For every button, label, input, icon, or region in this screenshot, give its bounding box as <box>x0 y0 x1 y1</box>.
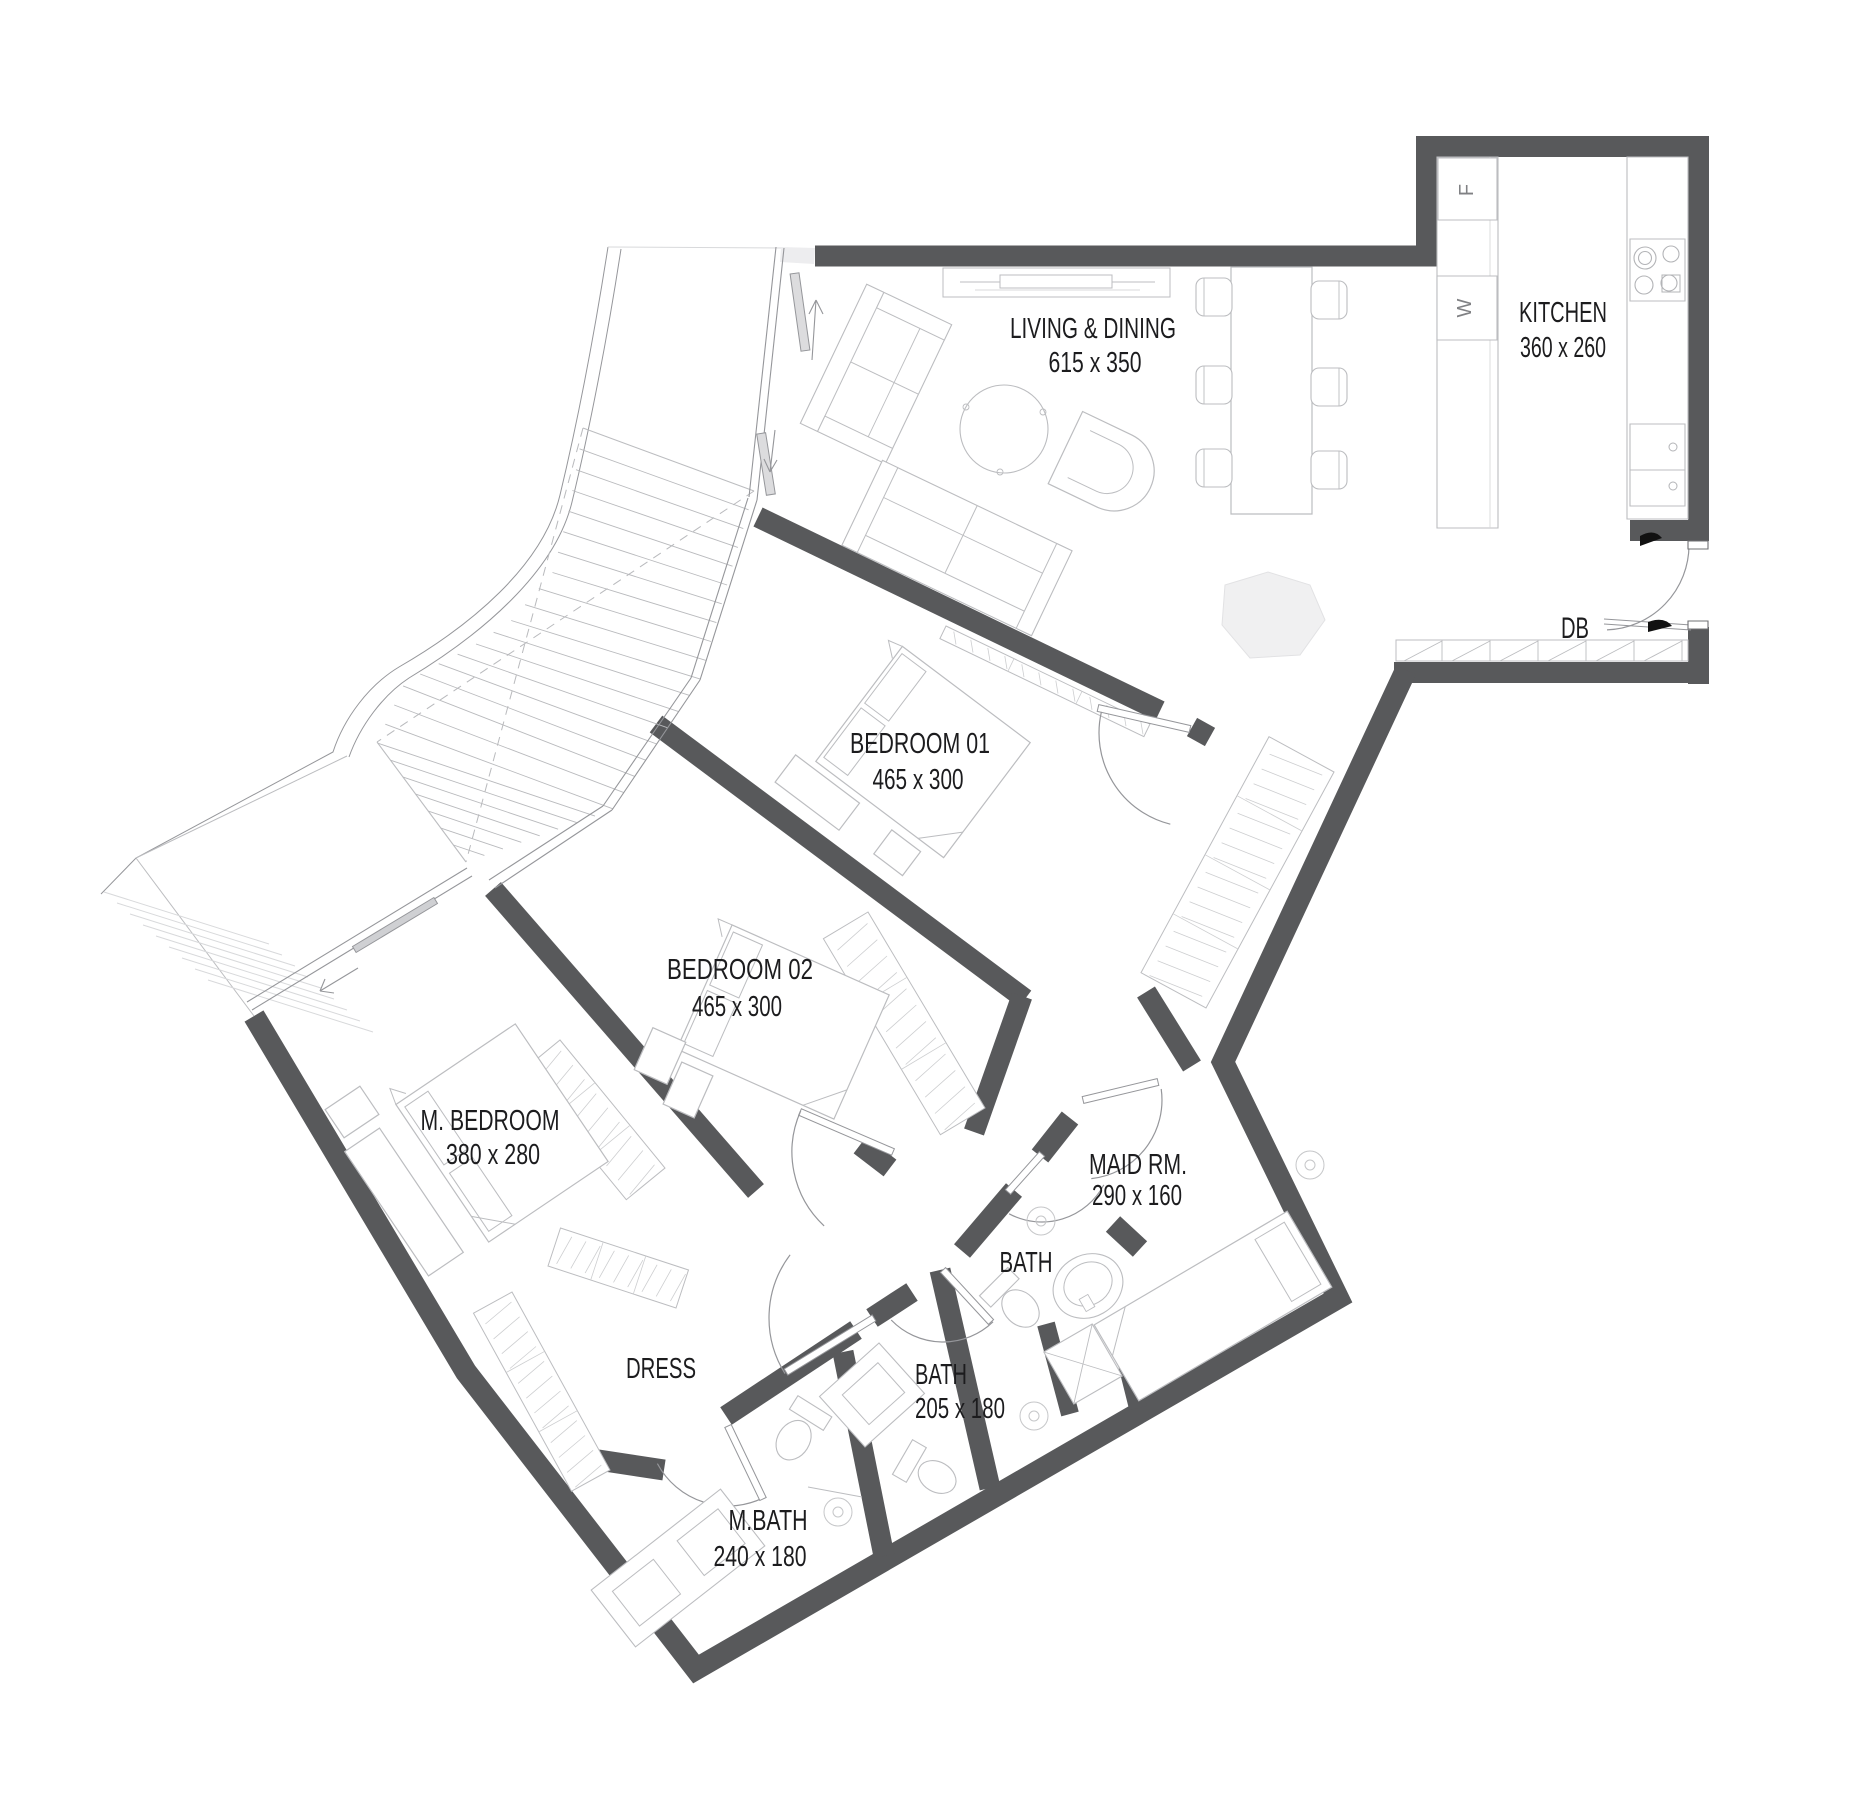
svg-text:DB: DB <box>1561 612 1589 645</box>
svg-text:BEDROOM 01: BEDROOM 01 <box>850 728 990 760</box>
svg-text:380 x 280: 380 x 280 <box>446 1139 540 1171</box>
svg-text:M. BEDROOM: M. BEDROOM <box>421 1105 560 1137</box>
svg-text:465 x 300: 465 x 300 <box>873 764 964 796</box>
svg-text:MAID RM.: MAID RM. <box>1089 1149 1187 1181</box>
svg-text:KITCHEN: KITCHEN <box>1519 297 1607 329</box>
svg-text:BATH: BATH <box>915 1359 967 1391</box>
svg-text:W: W <box>1454 298 1476 317</box>
svg-text:360 x 260: 360 x 260 <box>1520 332 1606 364</box>
svg-text:BATH: BATH <box>1000 1247 1053 1279</box>
svg-text:615 x 350: 615 x 350 <box>1049 347 1142 379</box>
svg-text:LIVING & DINING: LIVING & DINING <box>1010 313 1176 345</box>
svg-text:F: F <box>1456 184 1478 196</box>
svg-text:205 x 180: 205 x 180 <box>915 1393 1005 1425</box>
svg-text:BEDROOM 02: BEDROOM 02 <box>667 954 813 986</box>
svg-text:DRESS: DRESS <box>626 1353 696 1385</box>
svg-text:290 x 160: 290 x 160 <box>1092 1180 1182 1212</box>
svg-text:M.BATH: M.BATH <box>729 1505 808 1537</box>
svg-text:465 x 300: 465 x 300 <box>692 991 782 1023</box>
svg-text:240 x 180: 240 x 180 <box>714 1541 807 1573</box>
